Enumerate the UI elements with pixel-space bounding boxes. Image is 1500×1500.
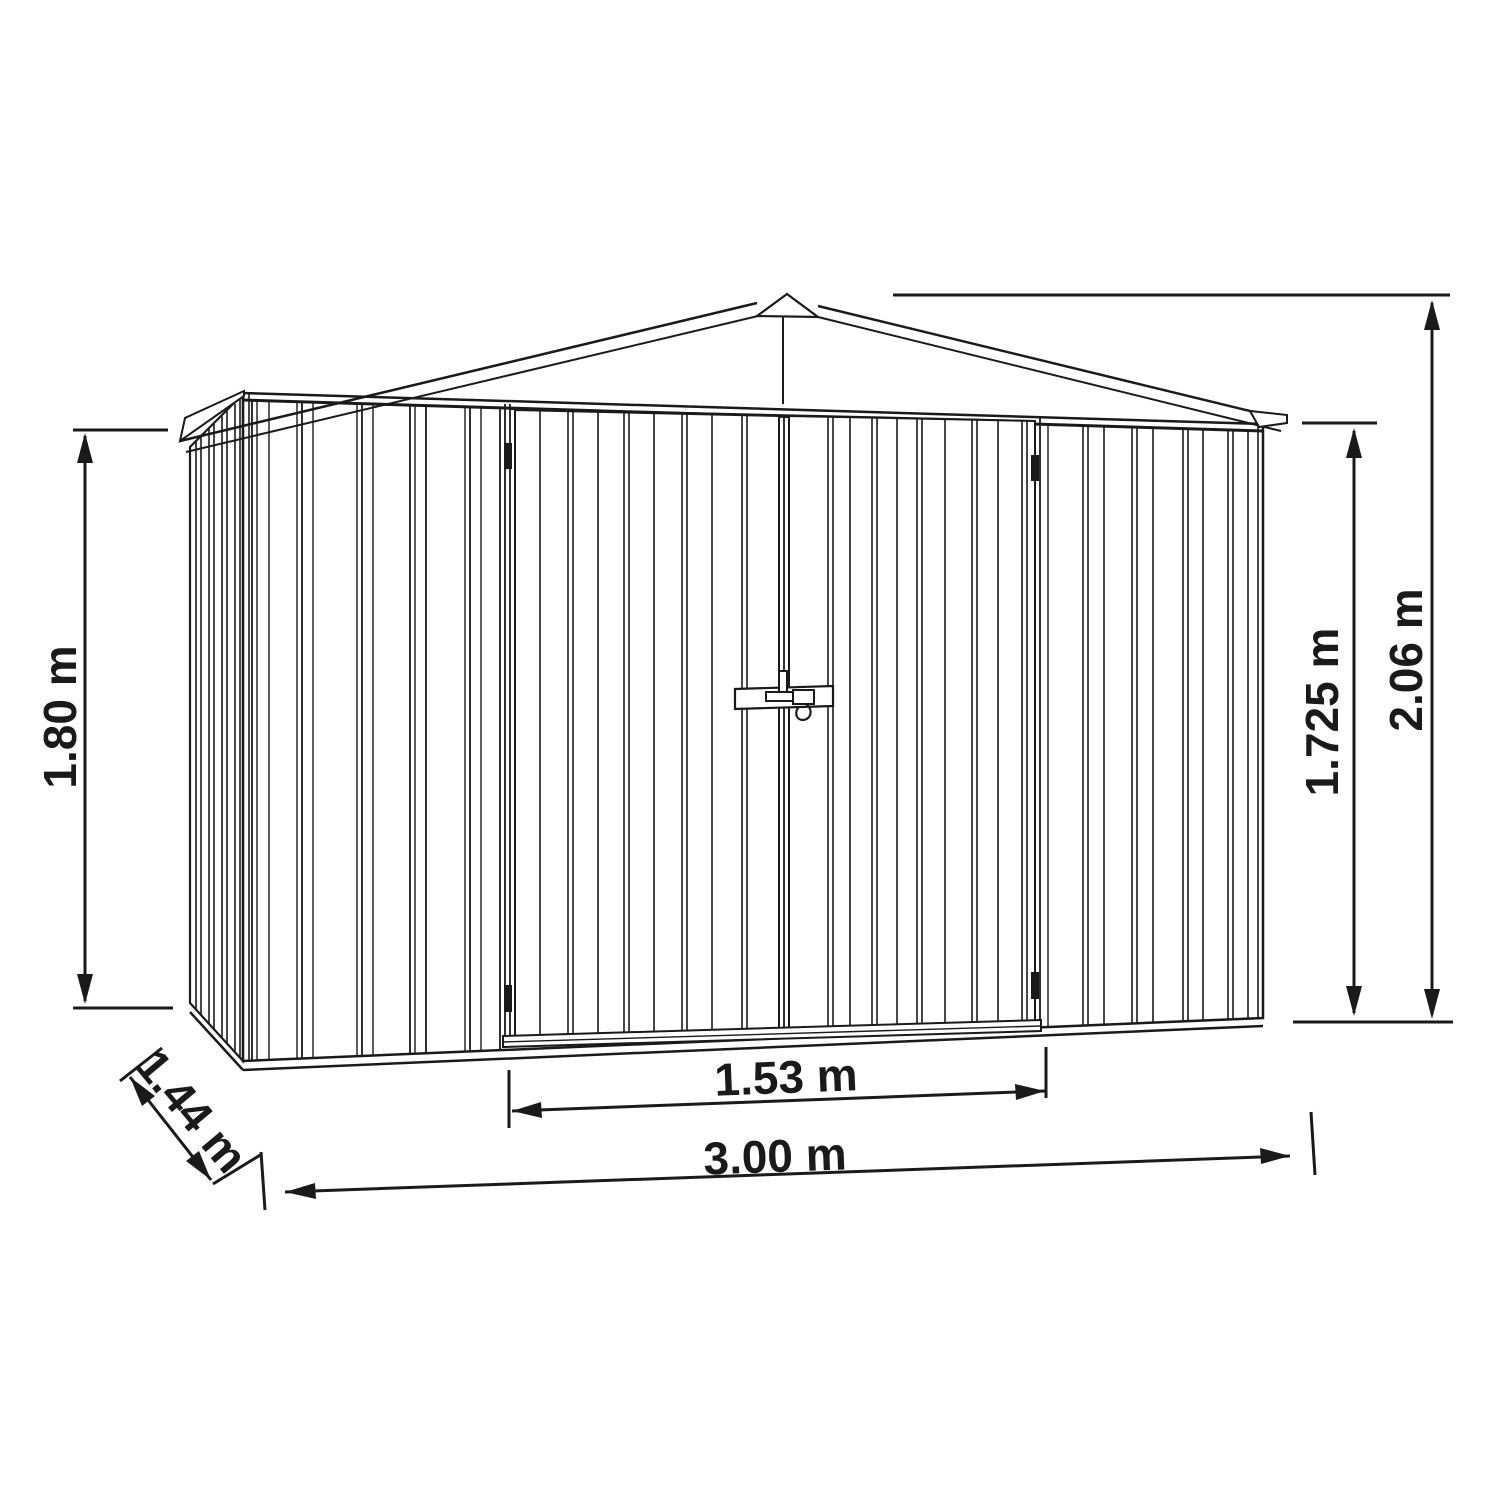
- arrow-left-icon: [512, 1102, 542, 1118]
- dimension-depth: 1.44 m: [120, 1039, 262, 1184]
- arrow-up-icon: [1424, 300, 1440, 330]
- dimension-door-width: 1.53 m: [509, 1047, 1046, 1128]
- eave-height-label: 1.725 m: [1296, 628, 1348, 797]
- arrow-down-icon: [1346, 986, 1362, 1016]
- dimension-eave-height: 1.725 m: [1296, 423, 1377, 1016]
- left-door-bottom-hinge-icon: [504, 985, 512, 1012]
- extension-line: [261, 1152, 265, 1210]
- drawing-canvas: 1.80 m 1.44 m 1.53 m 3.00 m 1.725 m: [0, 0, 1500, 1500]
- door-width-label: 1.53 m: [713, 1048, 858, 1105]
- roof-fascia-bottom-right: [818, 317, 1281, 431]
- left-door-panel: [515, 410, 779, 1037]
- dimension-left-height: 1.80 m: [34, 430, 173, 1008]
- arrow-right-icon: [1015, 1084, 1045, 1100]
- left-height-label: 1.80 m: [34, 645, 86, 788]
- roof-fascia-top-right: [818, 306, 1287, 420]
- right-door-top-hinge-icon: [1031, 455, 1039, 481]
- arrow-up-icon: [1346, 428, 1362, 458]
- dimension-total-width: 3.00 m: [261, 1112, 1315, 1210]
- right-door-bottom-hinge-icon: [1031, 972, 1039, 999]
- ridge-height-label: 2.06 m: [1380, 588, 1432, 731]
- arrow-right-icon: [1260, 1148, 1290, 1164]
- extension-line: [1311, 1112, 1315, 1175]
- left-door-top-hinge-icon: [504, 443, 512, 469]
- side-wall-corrugation: [196, 399, 240, 1057]
- shed-dimension-drawing: 1.80 m 1.44 m 1.53 m 3.00 m 1.725 m: [0, 0, 1500, 1500]
- total-width-label: 3.00 m: [702, 1127, 847, 1184]
- double-doors: [505, 404, 1048, 1048]
- arrow-down-icon: [77, 974, 93, 1004]
- arrow-up-icon: [77, 433, 93, 463]
- arrow-left-icon: [285, 1183, 316, 1199]
- ridge-cap: [757, 294, 818, 317]
- arrow-down-icon: [1424, 989, 1440, 1019]
